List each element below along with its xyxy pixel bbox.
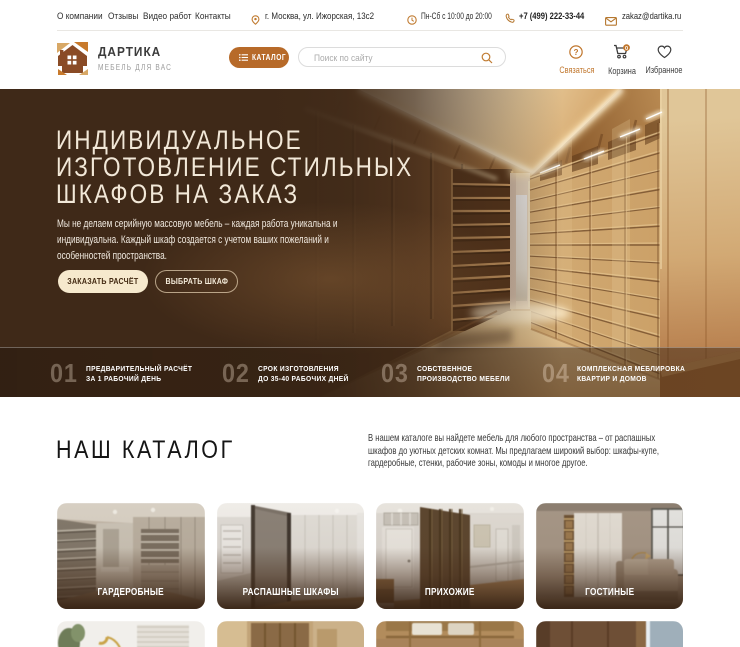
svg-text:?: ? — [574, 48, 579, 57]
svg-text:0: 0 — [625, 46, 628, 52]
